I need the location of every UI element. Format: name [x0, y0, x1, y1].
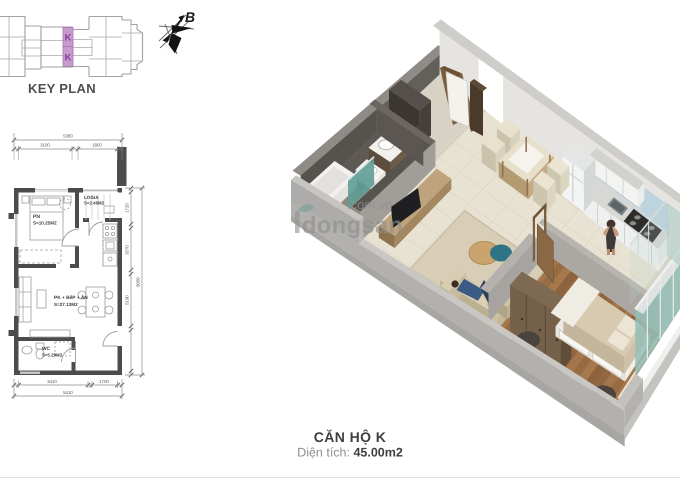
svg-text:WC: WC — [42, 346, 51, 352]
svg-text:PK + BếP + ĂN: PK + BếP + ĂN — [54, 294, 88, 301]
svg-text:KEY PLAN: KEY PLAN — [28, 81, 96, 96]
svg-text:1720: 1720 — [125, 203, 130, 213]
svg-text:Diện tích: 45.00m2: Diện tích: 45.00m2 — [297, 446, 403, 460]
svg-text:3410: 3410 — [47, 379, 57, 384]
svg-text:1700: 1700 — [99, 379, 109, 384]
svg-text:5190: 5190 — [125, 295, 130, 305]
svg-text:8060: 8060 — [136, 277, 141, 287]
svg-text:dongsan: dongsan — [302, 212, 403, 238]
svg-text:S=27.13M2: S=27.13M2 — [54, 302, 78, 307]
svg-text:PN: PN — [33, 214, 40, 220]
svg-text:S=5.29M2: S=5.29M2 — [42, 353, 63, 358]
svg-text:B: B — [185, 9, 195, 25]
svg-text:2070: 2070 — [125, 245, 130, 255]
svg-text:K: K — [65, 53, 72, 64]
svg-text:5360: 5360 — [63, 134, 73, 139]
svg-text:CĂN HỘ K: CĂN HỘ K — [314, 429, 386, 445]
svg-text:K: K — [65, 33, 72, 44]
svg-text:.com.vn: .com.vn — [347, 197, 393, 212]
svg-text:3100: 3100 — [40, 143, 50, 148]
svg-text:5410: 5410 — [63, 390, 73, 395]
svg-text:S=10.25M2: S=10.25M2 — [33, 221, 57, 226]
svg-text:S=2.46M2: S=2.46M2 — [84, 201, 105, 206]
svg-text:1850: 1850 — [92, 143, 102, 148]
svg-text:LOGIA: LOGIA — [84, 195, 99, 200]
